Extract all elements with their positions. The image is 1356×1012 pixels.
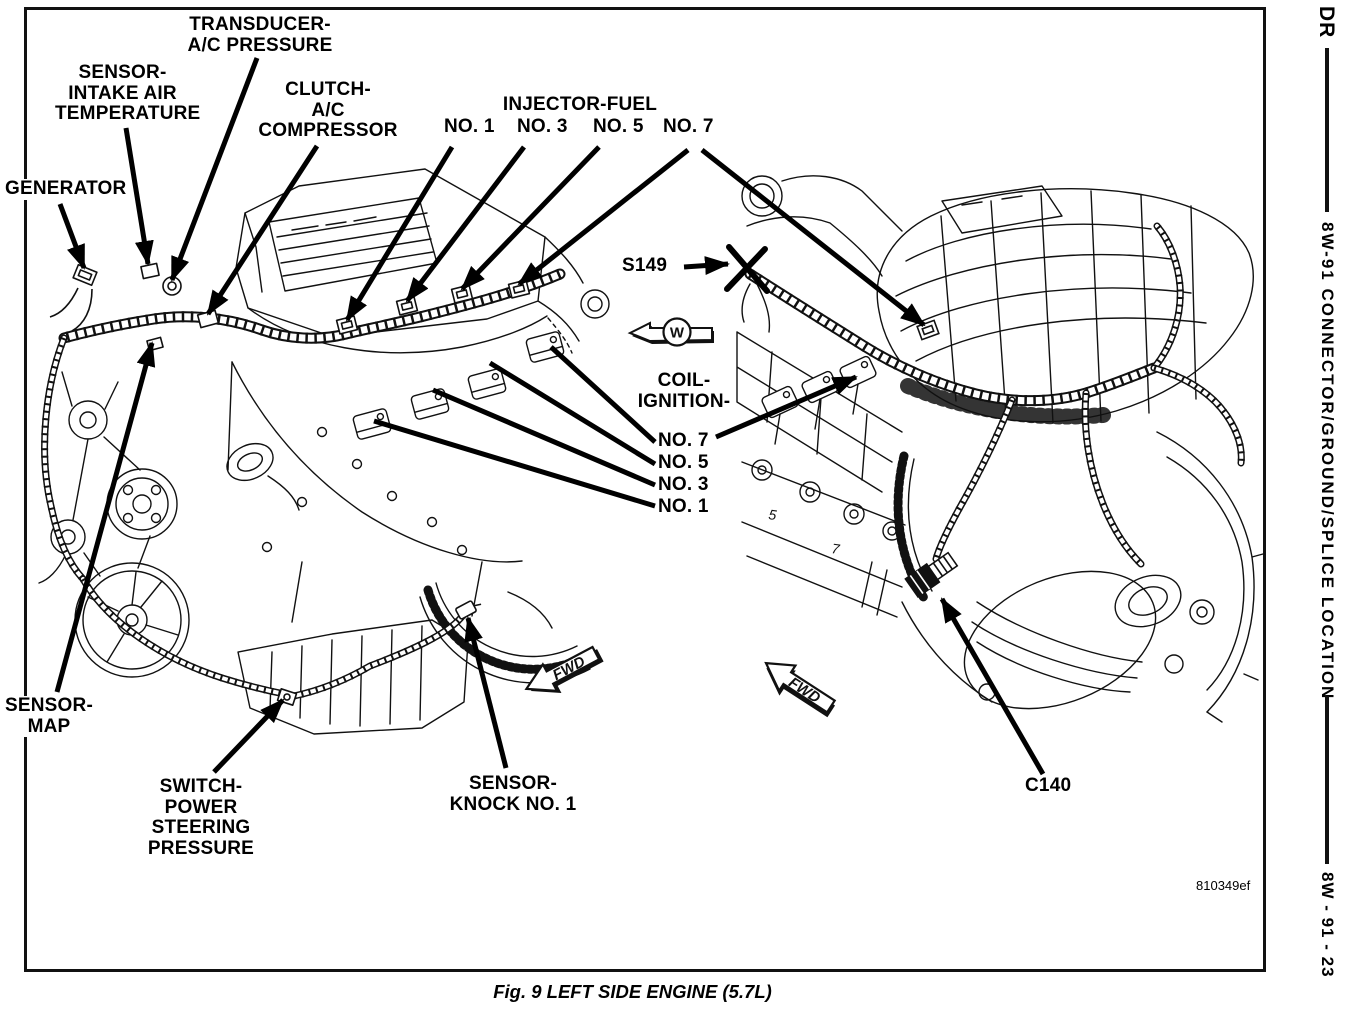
sidebar-model-code: DR bbox=[1314, 6, 1338, 38]
sidebar-rule-bottom bbox=[1325, 696, 1329, 864]
leader-generator bbox=[60, 204, 84, 268]
callout-injector-no-5: NO. 5 bbox=[593, 117, 644, 138]
callout-injector-fuel: INJECTOR-FUEL bbox=[500, 95, 660, 116]
callout-clutch-ac-compressor: CLUTCH- A/C COMPRESSOR bbox=[258, 80, 398, 142]
leader-s149 bbox=[684, 264, 728, 267]
manual-page: 5 7 W bbox=[0, 0, 1356, 1012]
leader-ps-switch bbox=[214, 700, 283, 772]
leader-iat bbox=[126, 128, 148, 264]
callout-injector-no-7: NO. 7 bbox=[663, 117, 714, 138]
engine-line-art-right bbox=[737, 176, 1263, 735]
callout-generator: GENERATOR bbox=[5, 179, 126, 200]
harness-left bbox=[45, 274, 560, 696]
figure-caption: Fig. 9 LEFT SIDE ENGINE (5.7L) bbox=[25, 981, 1240, 1003]
image-reference-number: 810349ef bbox=[1196, 878, 1250, 893]
callout-coil-no-7: NO. 7 bbox=[658, 431, 709, 452]
callout-sensor-map: SENSOR- MAP bbox=[3, 696, 95, 737]
callout-coil-ignition: COIL- IGNITION- bbox=[635, 371, 733, 412]
sidebar-rule-top bbox=[1325, 48, 1329, 212]
callout-coil-no-3: NO. 3 bbox=[658, 475, 709, 496]
callout-switch-power-steering-pressure: SWITCH- POWER STEERING PRESSURE bbox=[146, 777, 256, 859]
callout-sensor-knock-no-1: SENSOR- KNOCK NO. 1 bbox=[446, 774, 580, 815]
direction-w-letter: W bbox=[670, 325, 685, 342]
fwd-arrow-right: FWD bbox=[755, 651, 841, 724]
callout-injector-no-3: NO. 3 bbox=[517, 117, 568, 138]
callout-connector-c140: C140 bbox=[1025, 776, 1071, 797]
callout-injector-no-1: NO. 1 bbox=[444, 117, 495, 138]
sidebar-page-ref: 8W - 91 - 23 bbox=[1317, 872, 1337, 978]
leader-c140 bbox=[942, 599, 1043, 774]
callout-coil-no-1: NO. 1 bbox=[658, 497, 709, 518]
callout-splice-s149: S149 bbox=[622, 256, 667, 277]
callout-transducer-ac-pressure: TRANSDUCER- A/C PRESSURE bbox=[185, 15, 335, 56]
sidebar-section-title: 8W-91 CONNECTOR/GROUND/SPLICE LOCATION bbox=[1317, 222, 1337, 700]
leader-injector-3 bbox=[407, 147, 524, 301]
callout-coil-no-5: NO. 5 bbox=[658, 453, 709, 474]
cylinder-number-5: 5 bbox=[768, 506, 778, 523]
splice-x-icon bbox=[727, 247, 767, 291]
cylinder-number-7: 7 bbox=[831, 540, 842, 557]
leader-coil-1-left bbox=[374, 421, 655, 506]
leader-knock bbox=[468, 618, 506, 768]
direction-w-icon: W bbox=[630, 319, 714, 346]
callout-sensor-intake-air-temperature: SENSOR- INTAKE AIR TEMPERATURE bbox=[55, 63, 190, 125]
leader-injector-5 bbox=[462, 147, 599, 289]
connector-c140-illustration bbox=[905, 550, 959, 597]
